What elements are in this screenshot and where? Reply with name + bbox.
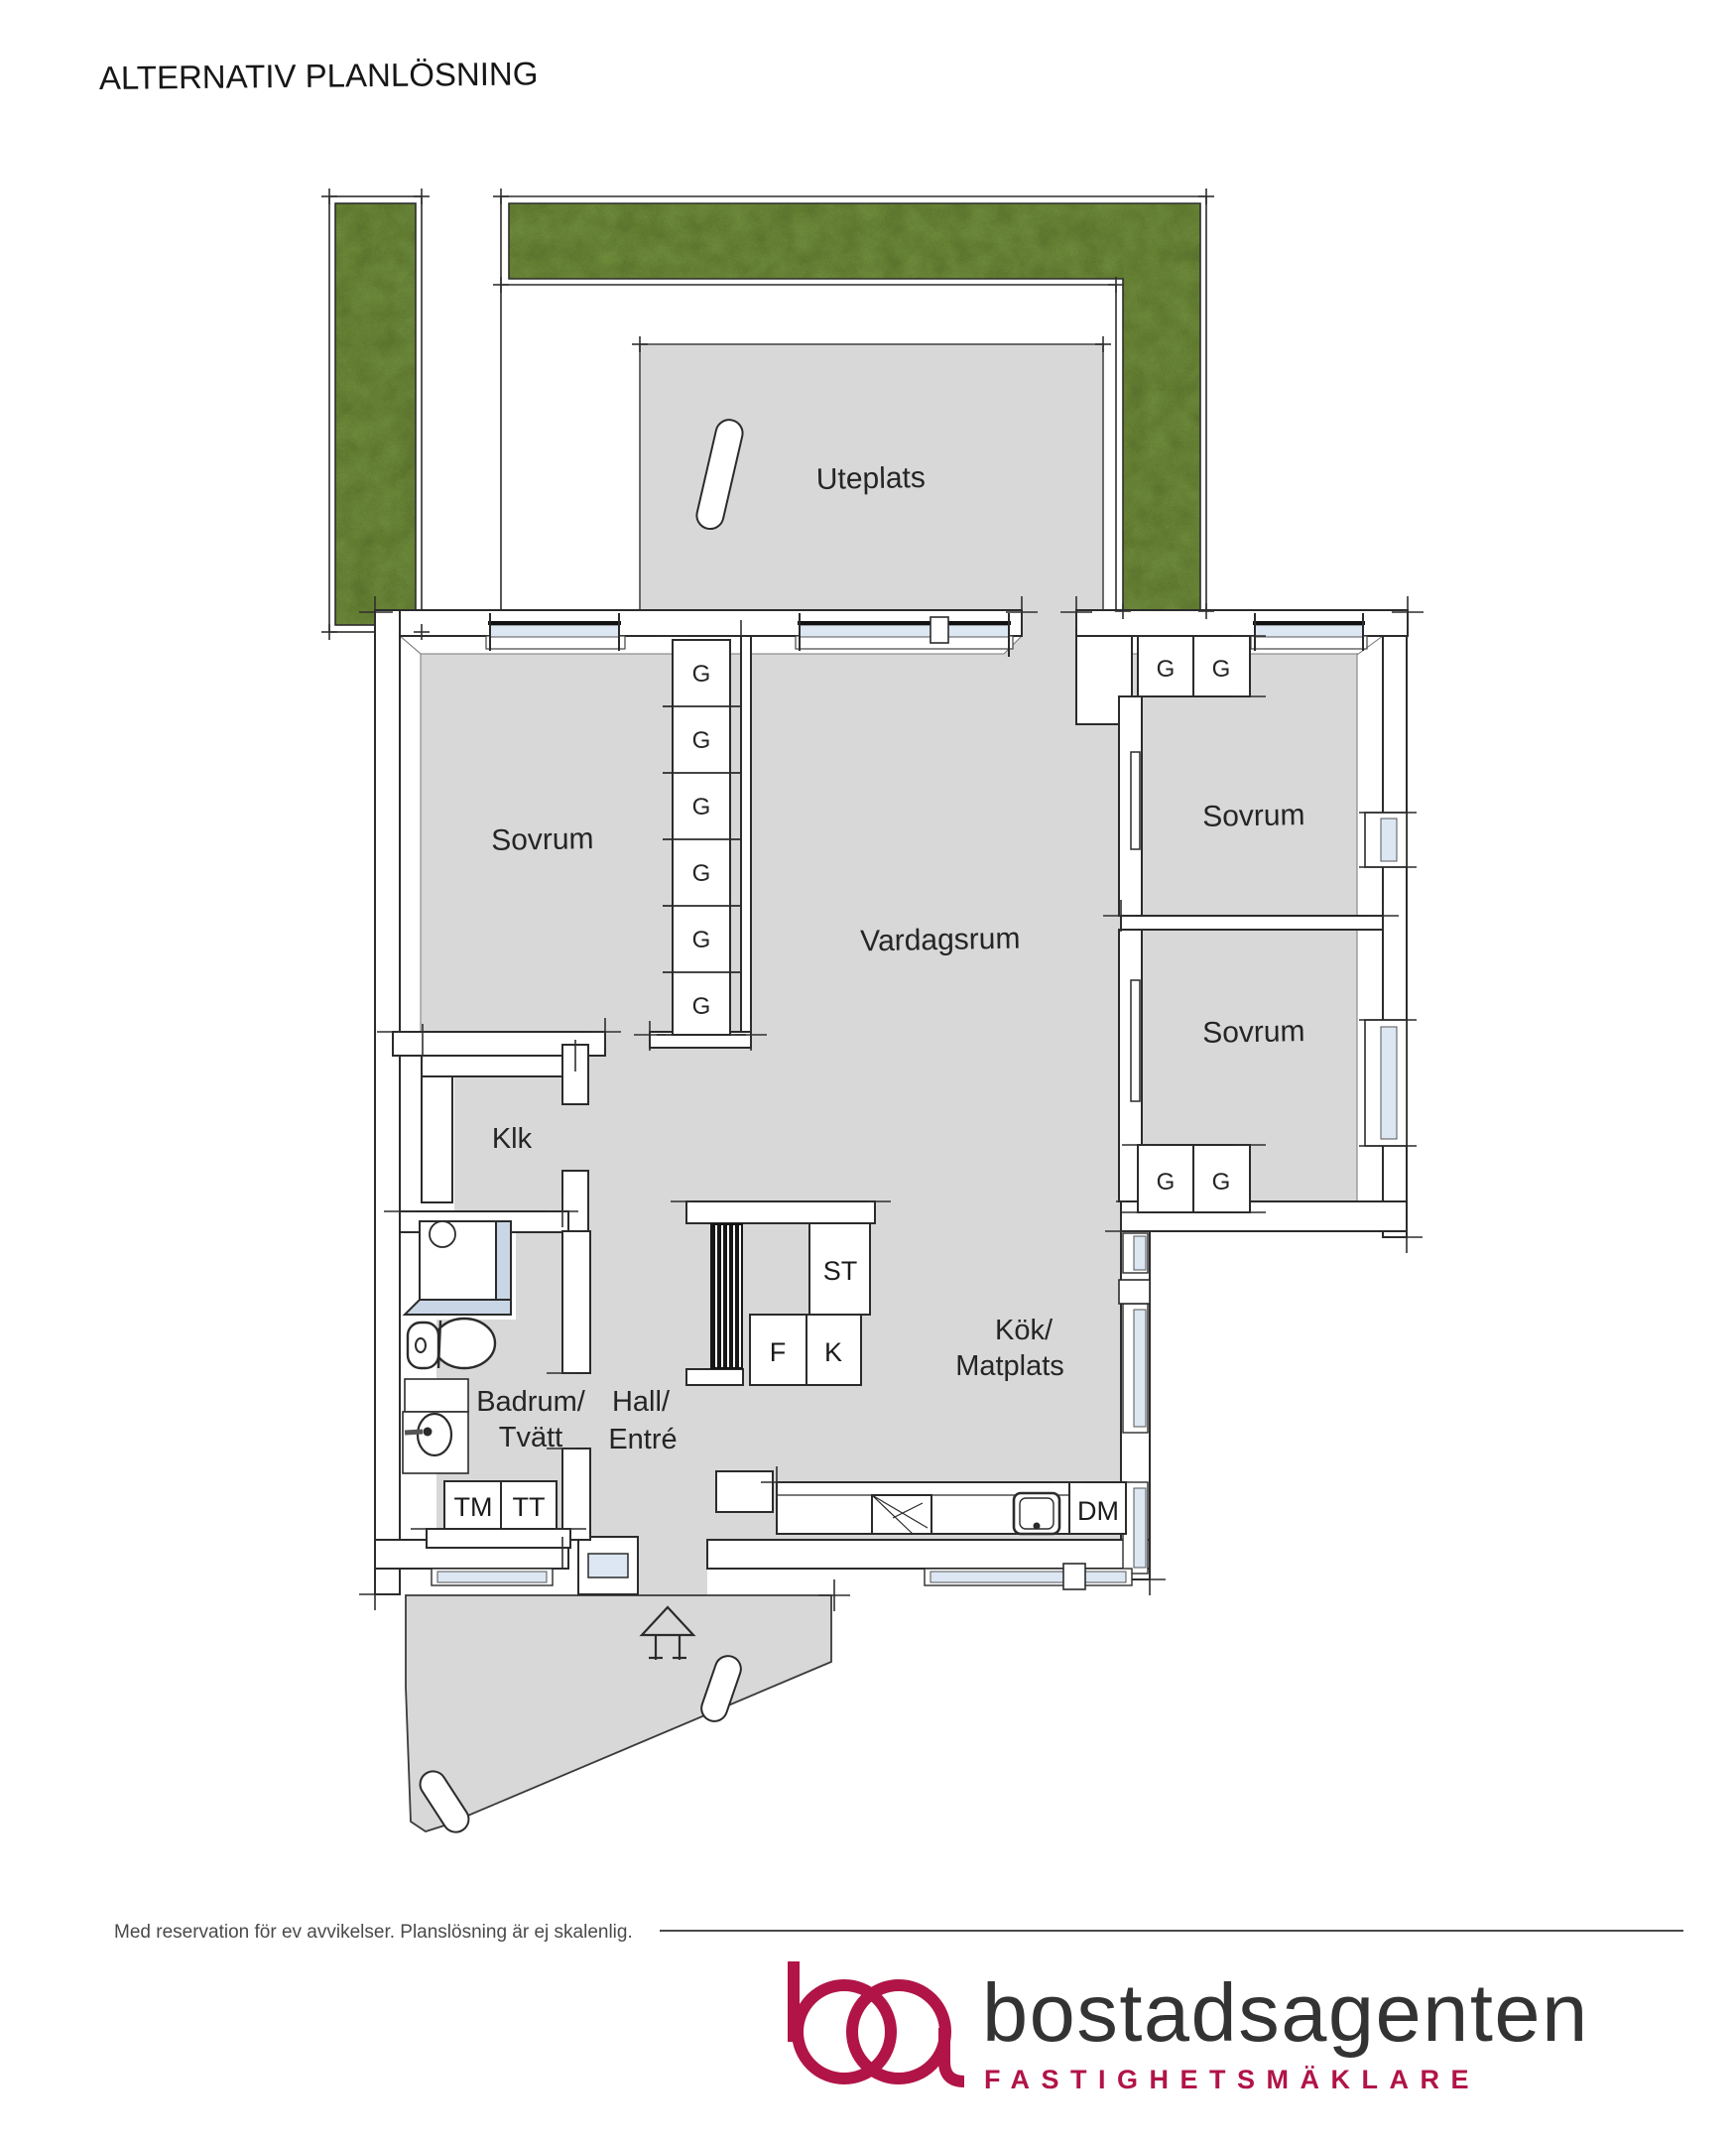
svg-text:Vardagsrum: Vardagsrum (860, 923, 1021, 958)
svg-text:FASTIGHETSMÄKLARE: FASTIGHETSMÄKLARE (984, 2065, 1480, 2094)
svg-text:ST: ST (823, 1256, 858, 1286)
svg-text:G: G (1212, 1169, 1231, 1196)
svg-text:K: K (824, 1337, 842, 1367)
svg-text:G: G (692, 661, 711, 688)
svg-text:ALTERNATIV PLANLÖSNING: ALTERNATIV PLANLÖSNING (99, 55, 539, 96)
svg-text:Med reservation för ev avvikel: Med reservation för ev avvikelser. Plans… (114, 1922, 633, 1943)
svg-text:Sovrum: Sovrum (491, 822, 594, 857)
svg-text:TT: TT (513, 1492, 546, 1522)
svg-text:G: G (692, 727, 711, 754)
svg-text:TM: TM (454, 1492, 493, 1522)
svg-text:G: G (692, 927, 711, 953)
svg-text:G: G (692, 993, 711, 1020)
svg-text:G: G (692, 860, 711, 887)
svg-text:DM: DM (1077, 1496, 1119, 1526)
svg-text:G: G (692, 794, 711, 820)
svg-text:Sovrum: Sovrum (1202, 799, 1305, 833)
svg-text:G: G (1157, 1169, 1176, 1196)
svg-text:Uteplats: Uteplats (816, 461, 927, 496)
svg-text:Badrum/: Badrum/ (476, 1386, 586, 1418)
svg-text:G: G (1212, 656, 1231, 683)
svg-text:Klk: Klk (492, 1123, 533, 1155)
svg-text:Kök/: Kök/ (995, 1315, 1054, 1346)
svg-text:F: F (770, 1337, 787, 1367)
svg-text:G: G (1157, 656, 1176, 683)
svg-text:bostadsagenten: bostadsagenten (982, 1966, 1589, 2059)
svg-text:Entré: Entré (608, 1424, 677, 1455)
svg-text:Hall/: Hall/ (612, 1386, 671, 1418)
svg-text:Sovrum: Sovrum (1202, 1015, 1305, 1050)
svg-text:Matplats: Matplats (955, 1350, 1064, 1382)
